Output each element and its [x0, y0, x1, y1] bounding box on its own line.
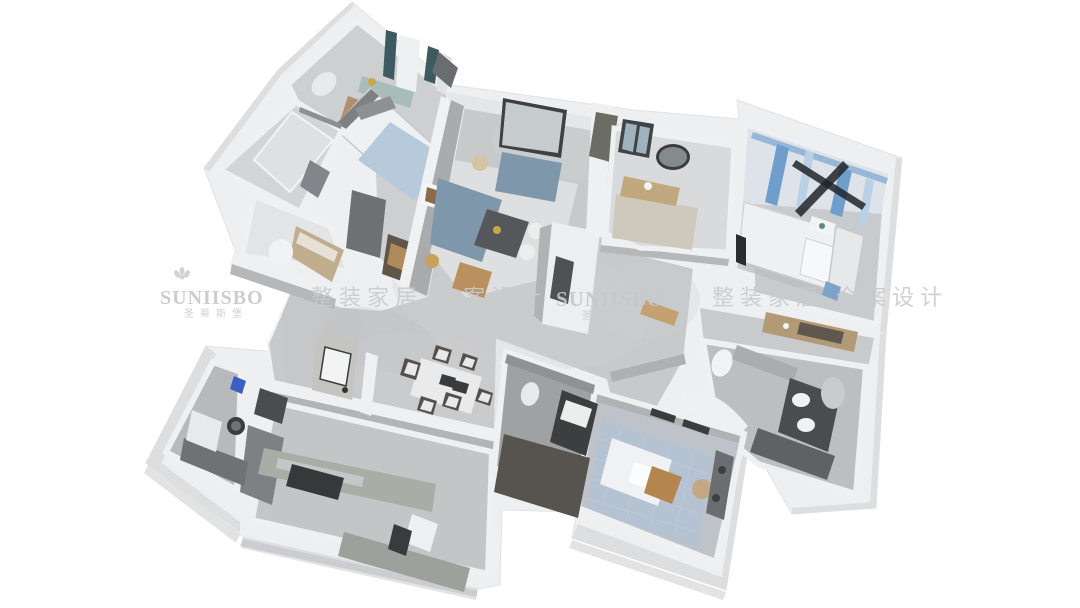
svg-text:整装家居 全案设计: 整装家居 全案设计: [311, 285, 547, 310]
svg-text:圣蒂斯堡: 圣蒂斯堡: [582, 309, 646, 322]
svg-text:SUNIISBO: SUNIISBO: [556, 287, 664, 311]
svg-text:SUNIISBO: SUNIISBO: [160, 287, 264, 309]
svg-text:整装家居 全案设计: 整装家居 全案设计: [712, 285, 948, 310]
svg-text:圣蒂斯堡: 圣蒂斯堡: [184, 307, 248, 320]
